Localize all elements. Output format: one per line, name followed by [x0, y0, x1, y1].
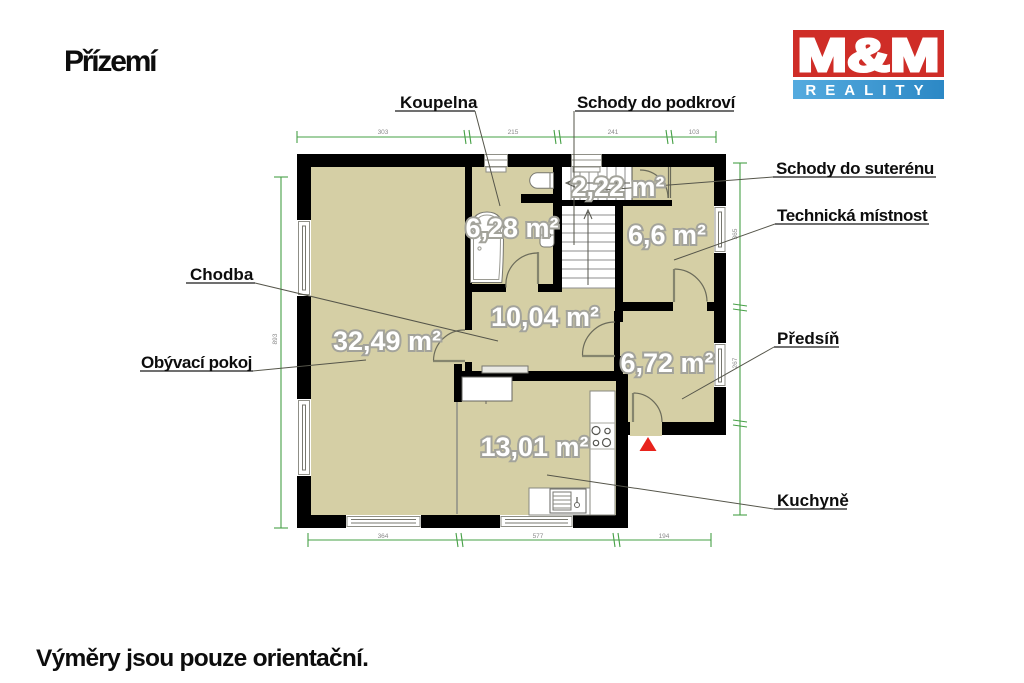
svg-text:M&M: M&M: [798, 29, 940, 81]
svg-text:6,28 m²: 6,28 m²: [465, 213, 558, 243]
svg-text:Výměry jsou pouze orientační.: Výměry jsou pouze orientační.: [36, 645, 368, 672]
svg-text:Přízemí: Přízemí: [64, 45, 159, 78]
svg-text:REALITY: REALITY: [805, 82, 932, 99]
svg-text:10,04 m²: 10,04 m²: [491, 302, 599, 332]
svg-text:13,01 m²: 13,01 m²: [480, 432, 588, 462]
svg-text:241: 241: [608, 129, 619, 136]
svg-text:103: 103: [689, 129, 700, 136]
svg-text:194: 194: [659, 533, 670, 540]
svg-text:Schody do podkroví: Schody do podkroví: [577, 93, 737, 112]
svg-text:6,6 m²: 6,6 m²: [628, 220, 706, 250]
svg-text:577: 577: [533, 533, 544, 540]
svg-text:215: 215: [508, 129, 519, 136]
svg-text:Chodba: Chodba: [190, 265, 254, 284]
svg-text:303: 303: [378, 129, 389, 136]
svg-text:Koupelna: Koupelna: [400, 93, 478, 112]
svg-text:Kuchyně: Kuchyně: [777, 491, 849, 510]
svg-text:2,22 m²: 2,22 m²: [571, 172, 664, 202]
svg-text:364: 364: [378, 533, 389, 540]
svg-text:32,49 m²: 32,49 m²: [333, 326, 441, 356]
svg-text:267: 267: [732, 357, 739, 368]
svg-text:Technická místnost: Technická místnost: [777, 206, 928, 225]
svg-text:893: 893: [272, 333, 279, 344]
svg-text:Schody do suterénu: Schody do suterénu: [776, 159, 934, 178]
svg-text:Předsíň: Předsíň: [777, 329, 839, 348]
svg-text:6,72 m²: 6,72 m²: [620, 348, 713, 378]
svg-text:Obývací pokoj: Obývací pokoj: [141, 353, 252, 372]
